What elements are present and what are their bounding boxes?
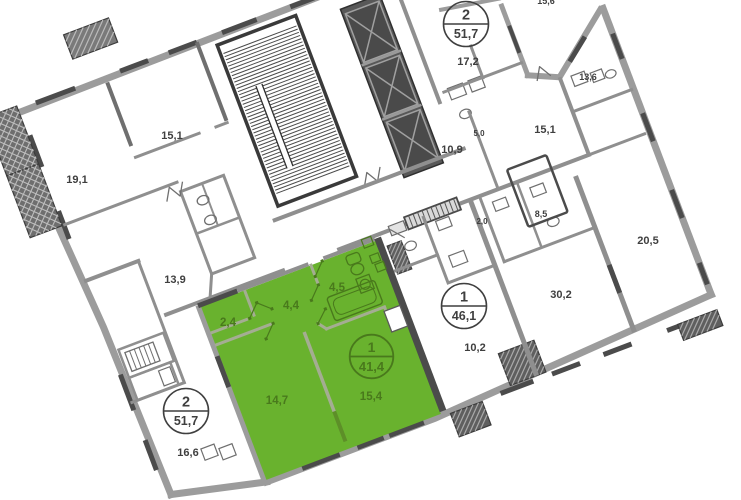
- svg-text:51,7: 51,7: [174, 414, 198, 428]
- svg-text:1: 1: [460, 290, 468, 306]
- svg-text:30,2: 30,2: [550, 289, 571, 301]
- svg-text:10,2: 10,2: [464, 342, 485, 354]
- svg-text:16,6: 16,6: [177, 447, 198, 459]
- svg-text:20,5: 20,5: [637, 235, 658, 247]
- svg-text:10,9: 10,9: [441, 144, 462, 156]
- svg-text:4,5: 4,5: [329, 282, 346, 294]
- svg-text:15,1: 15,1: [534, 124, 555, 136]
- svg-text:8,5: 8,5: [535, 209, 548, 219]
- svg-text:15,4: 15,4: [360, 391, 383, 403]
- svg-text:2: 2: [182, 395, 190, 411]
- svg-text:2,4: 2,4: [220, 317, 237, 329]
- svg-text:2: 2: [462, 8, 470, 24]
- svg-text:15,1: 15,1: [161, 130, 182, 142]
- svg-text:13,9: 13,9: [164, 274, 185, 286]
- svg-text:51,7: 51,7: [454, 27, 478, 41]
- svg-text:46,1: 46,1: [452, 309, 476, 323]
- svg-text:15,6: 15,6: [537, 0, 555, 6]
- svg-text:5,0: 5,0: [473, 129, 485, 138]
- svg-text:41,4: 41,4: [359, 359, 385, 374]
- svg-text:14,7: 14,7: [266, 395, 288, 407]
- svg-text:17,2: 17,2: [457, 56, 478, 68]
- svg-text:1: 1: [368, 339, 376, 355]
- svg-text:13,6: 13,6: [579, 72, 597, 82]
- svg-text:2,0: 2,0: [476, 217, 488, 226]
- svg-text:19,1: 19,1: [66, 174, 87, 186]
- svg-text:4,4: 4,4: [283, 300, 300, 312]
